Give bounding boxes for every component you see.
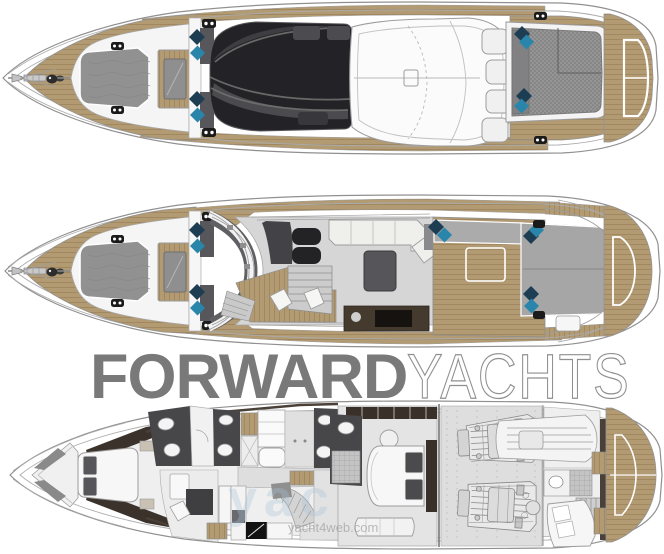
svg-text:yacht4web.com: yacht4web.com (288, 520, 378, 535)
